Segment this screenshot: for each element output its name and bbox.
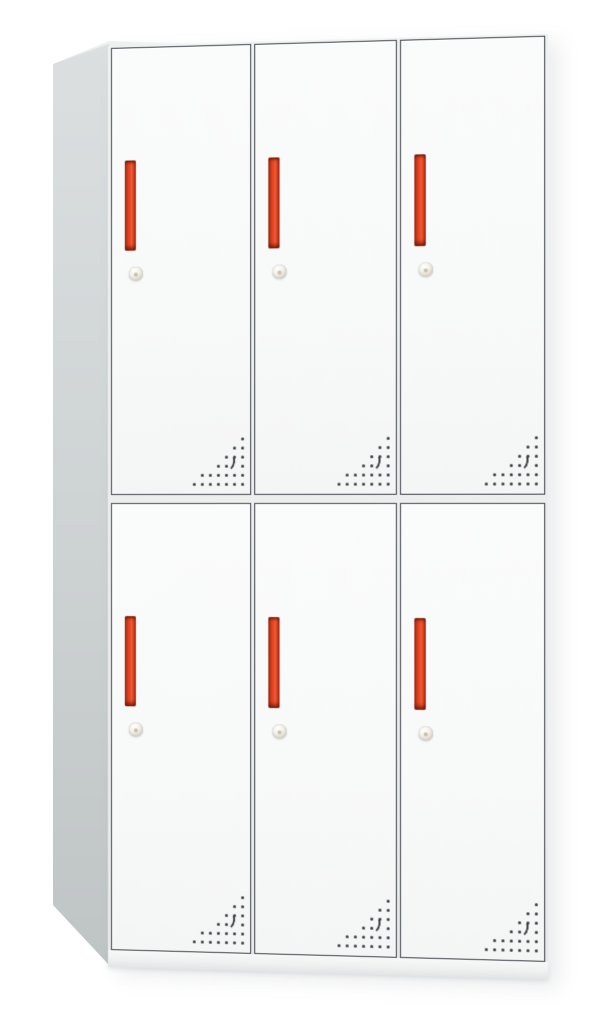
- vent-dot: [346, 474, 349, 477]
- vent-dot: [535, 949, 538, 952]
- vent-dot: [346, 944, 349, 947]
- vent-dot: [526, 940, 529, 943]
- vent-dot: [526, 445, 529, 448]
- vent-holes-triangle: [337, 898, 389, 948]
- vent-dot: [233, 932, 236, 935]
- door-handle-red-bar: [414, 154, 425, 246]
- locker-door-r2c3: [400, 503, 545, 962]
- vent-dot: [535, 436, 538, 439]
- vent-dot: [201, 474, 204, 477]
- vent-dot: [217, 465, 220, 468]
- vent-dot: [535, 445, 538, 448]
- vent-holes-triangle: [193, 437, 244, 485]
- vent-dot: [493, 473, 496, 476]
- vent-dot: [362, 936, 365, 939]
- vent-dot: [493, 939, 496, 942]
- keyhole-lock: [272, 724, 286, 738]
- vent-dot: [518, 949, 521, 952]
- vent-dot: [535, 464, 538, 467]
- door-handle-red-bar: [268, 157, 279, 248]
- vent-dot: [362, 945, 365, 948]
- vent-dot: [209, 932, 212, 935]
- vent-dot: [518, 482, 521, 485]
- vent-dot: [387, 909, 390, 912]
- vent-dot: [362, 483, 365, 486]
- vent-dot: [387, 483, 390, 486]
- vent-dot: [233, 905, 236, 908]
- keyhole-lock: [272, 264, 286, 278]
- vent-dot: [387, 945, 390, 948]
- cabinet-front: [108, 34, 548, 980]
- vent-dot: [370, 936, 373, 939]
- locker-door-r1c3: [400, 36, 545, 495]
- vent-dot: [535, 912, 538, 915]
- vent-dot: [501, 482, 504, 485]
- vent-dot: [362, 926, 365, 929]
- vent-dot: [241, 914, 244, 917]
- locker-door-r1c2: [254, 40, 397, 495]
- vent-dot: [535, 482, 538, 485]
- vent-holes-triangle: [337, 437, 389, 486]
- vent-dot: [233, 474, 236, 477]
- vent-dot: [217, 923, 220, 926]
- vent-dot: [387, 936, 390, 939]
- vent-dot: [241, 942, 244, 945]
- vent-dot: [387, 464, 390, 467]
- vent-dot: [510, 949, 513, 952]
- vent-dot: [378, 945, 381, 948]
- vent-dot: [233, 483, 236, 486]
- vent-dot: [535, 473, 538, 476]
- vent-dot: [387, 900, 390, 903]
- vent-dot: [535, 931, 538, 934]
- vent-dot: [526, 482, 529, 485]
- vent-holes-triangle: [485, 436, 538, 485]
- vent-dot: [535, 922, 538, 925]
- vent-dot: [526, 949, 529, 952]
- locker-door-r2c2: [254, 503, 397, 958]
- vent-dot: [233, 447, 236, 450]
- vent-dot: [241, 896, 244, 899]
- vent-dot: [526, 473, 529, 476]
- vent-dot: [535, 903, 538, 906]
- keyhole-lock: [129, 266, 143, 280]
- vent-dot: [241, 447, 244, 450]
- vent-dot: [526, 912, 529, 915]
- keyhole-core: [424, 268, 428, 272]
- vent-dot: [225, 932, 228, 935]
- vent-dot: [209, 474, 212, 477]
- locker-cabinet-photo: [0, 0, 605, 1009]
- vent-dot: [510, 930, 513, 933]
- vent-dot: [241, 465, 244, 468]
- keyhole-lock: [419, 726, 433, 740]
- vent-dot: [337, 483, 340, 486]
- vent-dot: [510, 939, 513, 942]
- vent-dot: [370, 483, 373, 486]
- vent-dot: [362, 473, 365, 476]
- vent-dot: [518, 940, 521, 943]
- vent-dot: [241, 456, 244, 459]
- vent-dot: [241, 932, 244, 935]
- vent-dot: [241, 474, 244, 477]
- vent-dot: [225, 474, 228, 477]
- vent-dot: [362, 464, 365, 467]
- vent-dot: [535, 940, 538, 943]
- vent-dot: [378, 473, 381, 476]
- vent-dot: [209, 941, 212, 944]
- keyhole-core: [424, 732, 428, 736]
- vent-dot: [485, 948, 488, 951]
- vent-dot: [535, 455, 538, 458]
- keyhole-core: [134, 273, 138, 277]
- vent-dot: [225, 483, 228, 486]
- vent-dot: [510, 473, 513, 476]
- vent-dot: [217, 483, 220, 486]
- vent-dot: [217, 474, 220, 477]
- vent-dot: [233, 941, 236, 944]
- vent-dot: [493, 482, 496, 485]
- vent-dot: [501, 939, 504, 942]
- vent-dot: [378, 936, 381, 939]
- door-grid: [108, 34, 548, 962]
- keyhole-core: [134, 728, 138, 732]
- vent-dot: [201, 940, 204, 943]
- vent-dot: [370, 945, 373, 948]
- vent-dot: [225, 941, 228, 944]
- vent-dot: [354, 474, 357, 477]
- vent-dot: [370, 473, 373, 476]
- vent-dot: [241, 437, 244, 440]
- vent-dot: [510, 464, 513, 467]
- vent-dot: [354, 935, 357, 938]
- vent-dot: [510, 482, 513, 485]
- vent-dot: [387, 473, 390, 476]
- vent-holes-triangle: [193, 895, 244, 945]
- vent-dot: [501, 948, 504, 951]
- keyhole-core: [277, 271, 281, 275]
- vent-dot: [346, 935, 349, 938]
- cabinet-side-panel: [53, 44, 109, 965]
- vent-dot: [518, 473, 521, 476]
- vent-dot: [217, 941, 220, 944]
- vent-dot: [193, 483, 196, 486]
- locker-door-r1c1: [111, 44, 251, 495]
- vent-dot: [217, 932, 220, 935]
- vent-dot: [485, 482, 488, 485]
- vent-dot: [493, 948, 496, 951]
- vent-dot: [387, 446, 390, 449]
- door-handle-red-bar: [125, 160, 136, 250]
- vent-dot: [193, 940, 196, 943]
- vent-dot: [241, 483, 244, 486]
- vent-dot: [201, 483, 204, 486]
- vent-dot: [209, 483, 212, 486]
- vent-dot: [354, 483, 357, 486]
- vent-dot: [201, 931, 204, 934]
- vent-dot: [346, 483, 349, 486]
- vent-dot: [378, 446, 381, 449]
- vent-holes-triangle: [485, 902, 538, 953]
- door-handle-red-bar: [268, 617, 279, 708]
- vent-dot: [501, 473, 504, 476]
- keyhole-lock: [419, 262, 433, 276]
- vent-dot: [378, 483, 381, 486]
- vent-dot: [378, 909, 381, 912]
- keyhole-lock: [129, 722, 143, 736]
- vent-dot: [337, 944, 340, 947]
- door-handle-red-bar: [125, 616, 136, 706]
- vent-dot: [387, 918, 390, 921]
- vent-dot: [241, 923, 244, 926]
- door-handle-red-bar: [414, 618, 425, 710]
- vent-dot: [241, 905, 244, 908]
- vent-dot: [354, 945, 357, 948]
- vent-dot: [387, 927, 390, 930]
- keyhole-core: [277, 730, 281, 734]
- locker-door-r2c1: [111, 503, 251, 954]
- vent-dot: [387, 455, 390, 458]
- vent-dot: [387, 437, 390, 440]
